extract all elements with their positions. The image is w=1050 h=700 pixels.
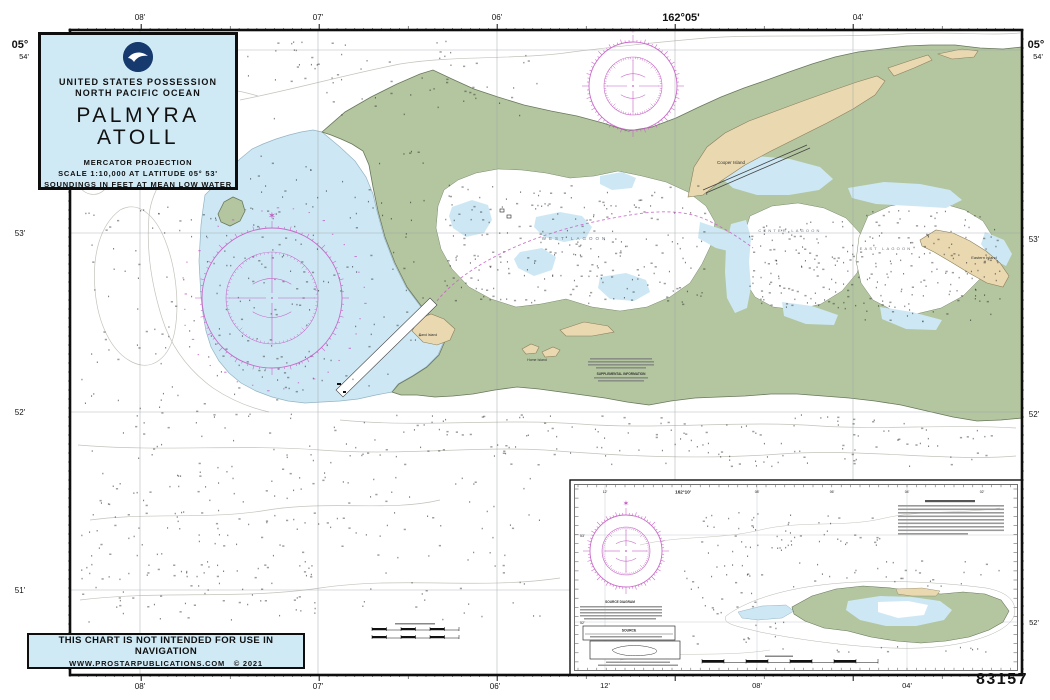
inset-lon-label-bottom-08: 08' bbox=[752, 681, 762, 690]
title-block: UNITED STATES POSSESSION NORTH PACIFIC O… bbox=[38, 32, 238, 190]
inset-lon-label-bottom-12: 12' bbox=[600, 681, 610, 690]
lon-label-top-07: 07' bbox=[313, 13, 324, 22]
chart-title-line2: ATOLL bbox=[76, 127, 199, 149]
supplemental-note-heading: SUPPLEMENTAL INFORMATION bbox=[597, 372, 647, 376]
lat-label-left-54: 54' bbox=[19, 52, 29, 61]
title-projection: MERCATOR PROJECTION bbox=[84, 158, 193, 167]
inset-lat-52: 52' bbox=[580, 621, 585, 625]
disclaimer-line1: THIS CHART IS NOT INTENDED FOR USE IN NA… bbox=[29, 635, 303, 657]
disclaimer-line2: WWW.PROSTARPUBLICATIONS.COM © 2021 bbox=[69, 659, 263, 668]
label-sand-island: Sand Island bbox=[419, 333, 438, 337]
disclaimer-box: THIS CHART IS NOT INTENDED FOR USE IN NA… bbox=[27, 633, 305, 669]
lon-label-top-162-05: 162°05' bbox=[662, 12, 700, 24]
lat-label-left-52: 52' bbox=[15, 408, 26, 417]
disclaimer-copyright: © 2021 bbox=[234, 659, 263, 668]
inset-source-table-heading: SOURCE bbox=[622, 629, 637, 633]
lat-label-left-51: 51' bbox=[15, 586, 26, 595]
inset-lat-label-right-52: 52' bbox=[1029, 618, 1039, 627]
chart-number: 83157 bbox=[976, 671, 1028, 689]
compass-star-icon: ✶ bbox=[623, 499, 630, 508]
lat-label-left-05deg: 05° bbox=[12, 39, 29, 51]
inset-lon-06: 06' bbox=[830, 490, 835, 494]
label-cooper-island: Cooper Island bbox=[717, 160, 746, 165]
chart-title-line1: PALMYRA bbox=[76, 105, 199, 127]
noaa-logo bbox=[123, 42, 153, 72]
lon-label-top-08: 08' bbox=[135, 13, 146, 22]
label-center-lagoon: CENTER LAGOON bbox=[758, 228, 821, 233]
title-ocean: NORTH PACIFIC OCEAN bbox=[75, 88, 201, 98]
lat-label-left-53: 53' bbox=[15, 229, 26, 238]
inset-lon-02: 02' bbox=[980, 490, 985, 494]
inset-source-diagram-heading: SOURCE DIAGRAM bbox=[605, 600, 635, 604]
lat-label-right-05deg: 05° bbox=[1028, 39, 1045, 51]
nautical-chart-page: ✶ ✶ SUPPLEMENTAL INFORMATION Cooper Isla… bbox=[0, 0, 1050, 700]
title-soundings: SOUNDINGS IN FEET AT MEAN LOW WATER bbox=[44, 180, 232, 189]
label-west-lagoon: WEST LAGOON bbox=[542, 236, 608, 241]
disclaimer-url: WWW.PROSTARPUBLICATIONS.COM bbox=[69, 659, 225, 668]
label-eastern-island: Eastern Island bbox=[971, 255, 997, 260]
lat-label-right-54: 54' bbox=[1033, 52, 1043, 61]
inset-lon-label-bottom-04: 04' bbox=[902, 681, 912, 690]
compass-star-icon: ✶ bbox=[268, 211, 276, 222]
lat-label-right-52: 52' bbox=[1029, 410, 1040, 419]
lon-label-bottom-06: 06' bbox=[490, 682, 501, 691]
chart-title: PALMYRA ATOLL bbox=[76, 105, 199, 149]
lon-label-top-06: 06' bbox=[492, 13, 503, 22]
inset-lon-08: 08' bbox=[755, 490, 760, 494]
label-home-island: Home Island bbox=[527, 358, 547, 362]
inset-lon-12: 12' bbox=[603, 490, 608, 494]
lon-label-bottom-08: 08' bbox=[135, 682, 146, 691]
inset-lat-53: 53' bbox=[580, 534, 585, 538]
lon-label-bottom-07: 07' bbox=[313, 682, 324, 691]
lon-label-top-04: 04' bbox=[853, 13, 864, 22]
title-scale: SCALE 1:10,000 AT LATITUDE 05° 53' bbox=[58, 169, 218, 178]
title-possession: UNITED STATES POSSESSION bbox=[59, 77, 217, 87]
inset-map: 12' 162°10' 08' 06' 04' 02' 53' 52' bbox=[570, 480, 1022, 675]
inset-lon-04: 04' bbox=[905, 490, 910, 494]
lat-label-right-53: 53' bbox=[1029, 235, 1040, 244]
label-east-lagoon: EAST LAGOON bbox=[860, 246, 913, 251]
main-scale-bar bbox=[372, 623, 459, 639]
inset-lon-main: 162°10' bbox=[675, 490, 691, 495]
